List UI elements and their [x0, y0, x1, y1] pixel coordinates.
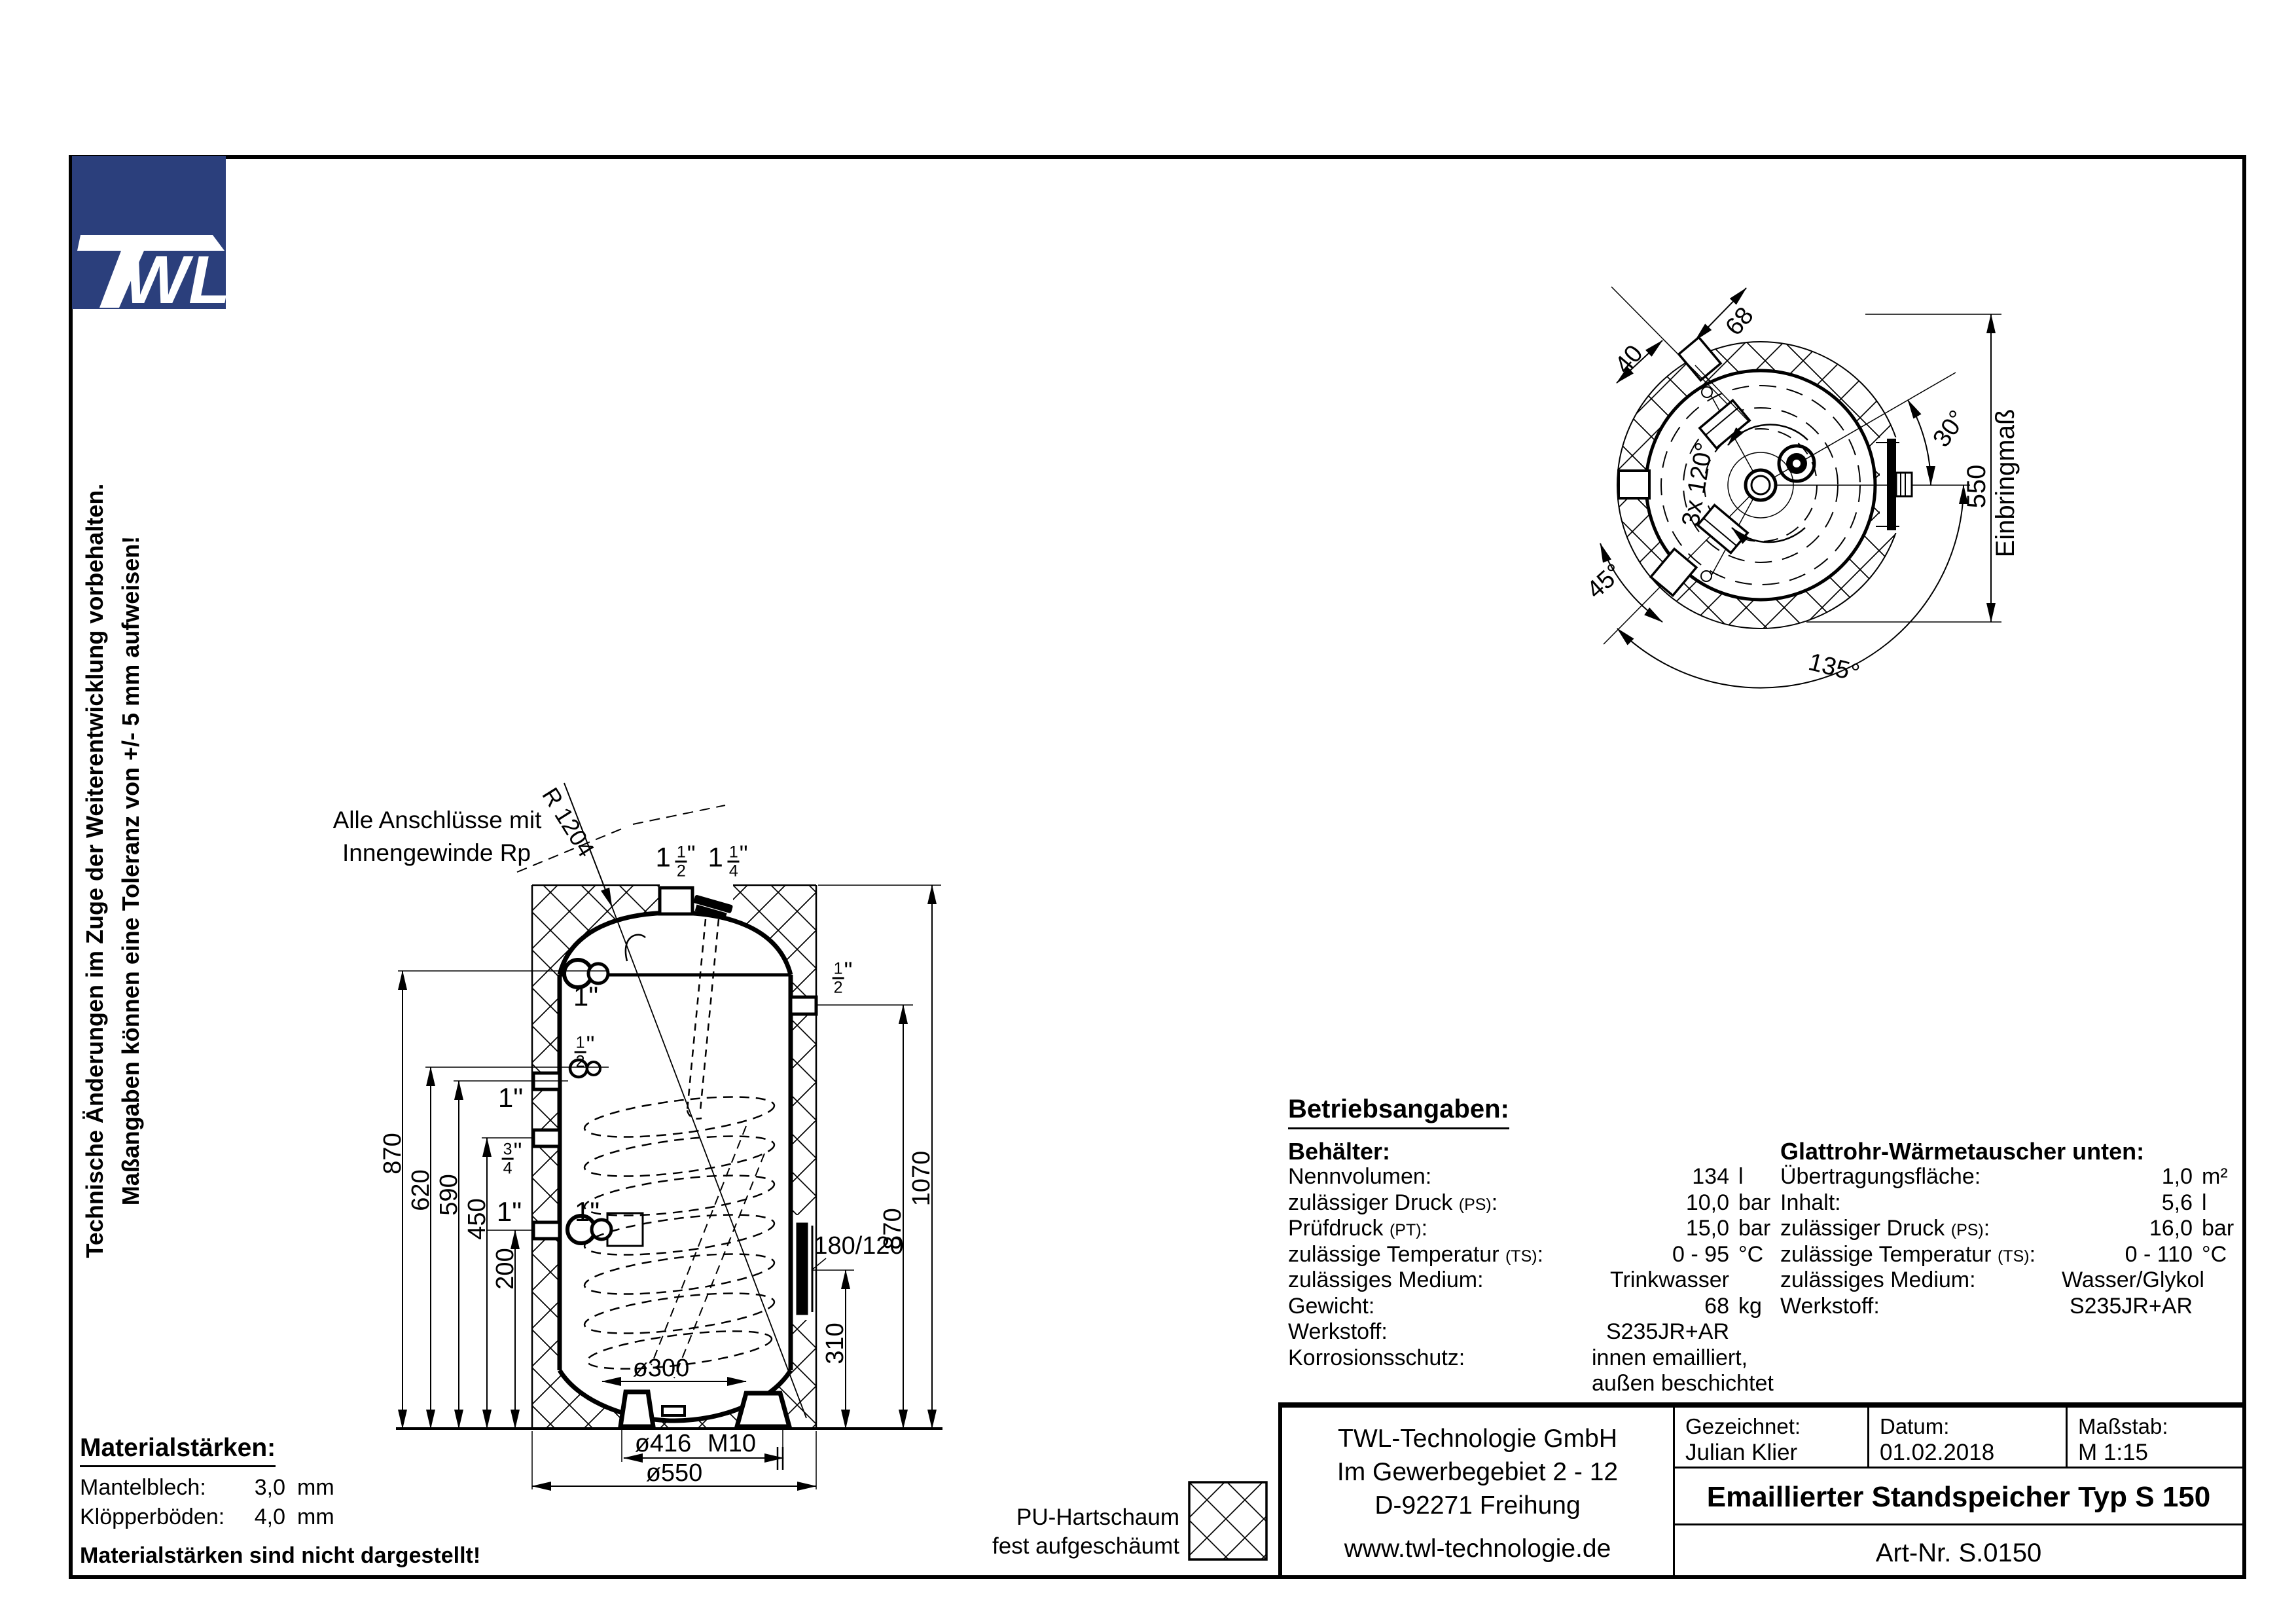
- heat-exchanger-title: Glattrohr-Wärmetauscher unten:: [1780, 1138, 2238, 1164]
- table-row: zulässige Temperatur (TS):0 - 110°C: [1780, 1242, 2238, 1268]
- drawing-title: Emaillierter Standspeicher Typ S 150: [1675, 1470, 2242, 1525]
- tv-einbringmass: Einbringmaß: [1992, 409, 2018, 558]
- dim-310: 310: [823, 1322, 848, 1364]
- pu-foam-legend: PU-Hartschaum fest aufgeschäumt: [950, 1503, 1179, 1561]
- heat-exchanger-column: Glattrohr-Wärmetauscher unten: Übertragu…: [1780, 1138, 2238, 1319]
- dim-d550: ø550: [646, 1461, 703, 1486]
- material-row: Klöpperböden:4,0mm: [80, 1504, 577, 1534]
- date-cell: Datum: 01.02.2018: [1869, 1408, 2068, 1467]
- date-label: Datum:: [1880, 1413, 2055, 1440]
- drawn-by-cell: Gezeichnet: Julian Klier: [1675, 1408, 1869, 1467]
- material-row: Mantelblech:3,0mm: [80, 1475, 577, 1504]
- table-row: zulässiger Druck (PS):16,0bar: [1780, 1216, 2238, 1242]
- dim-d300: ø300: [633, 1356, 690, 1381]
- conn-label-1in-top: 1": [573, 983, 598, 1010]
- company-city: D-92271 Freihung: [1282, 1489, 1673, 1522]
- vessel-column: Behälter: Nennvolumen:134l zulässiger Dr…: [1288, 1138, 1780, 1397]
- revision-note-line2: Maßangaben können eine Toleranz von +/- …: [113, 484, 149, 1258]
- company-street: Im Gewerbegebiet 2 - 12: [1282, 1455, 1673, 1489]
- drawn-by-value: Julian Klier: [1685, 1440, 1857, 1466]
- company-cell: TWL-Technologie GmbH Im Gewerbegebiet 2 …: [1282, 1408, 1675, 1579]
- table-row: Übertragungsfläche:1,0m²: [1780, 1164, 2238, 1190]
- dim-1070: 1070: [909, 1151, 934, 1207]
- twl-logo: WL: [72, 156, 226, 309]
- conn-label-1in-mid: 1": [498, 1084, 523, 1112]
- revision-note-line1: Technische Änderungen im Zuge der Weiter…: [77, 484, 113, 1258]
- table-row: Nennvolumen:134l: [1288, 1164, 1780, 1190]
- dim-450: 450: [465, 1198, 490, 1239]
- material-thickness-section: Materialstärken: Mantelblech:3,0mm Klöpp…: [80, 1434, 577, 1569]
- dim-620: 620: [408, 1169, 433, 1211]
- dim-590: 590: [437, 1174, 461, 1215]
- dim-870-left: 870: [380, 1133, 405, 1174]
- material-title: Materialstärken:: [80, 1434, 276, 1467]
- article-number: Art-Nr. S.0150: [1675, 1527, 2242, 1579]
- scale-cell: Maßstab: M 1:15: [2068, 1408, 2242, 1467]
- meta-row: Gezeichnet: Julian Klier Datum: 01.02.20…: [1675, 1408, 2242, 1468]
- conn-label-1in-bottom-right: 1": [575, 1198, 600, 1226]
- pu-foam-hatch-sample: [1188, 1481, 1268, 1561]
- material-note: Materialstärken sind nicht dargestellt!: [80, 1543, 577, 1569]
- dim-d416: ø416: [635, 1431, 692, 1456]
- title-block-right: Gezeichnet: Julian Klier Datum: 01.02.20…: [1675, 1408, 2242, 1579]
- operating-data-section: Betriebsangaben: Behälter: Nennvolumen:1…: [1288, 1095, 2246, 1399]
- conn-label-halfin-left: 12": [575, 1028, 595, 1070]
- table-row: zulässiges Medium:Trinkwasser: [1288, 1267, 1780, 1294]
- table-row: Inhalt:5,6l: [1780, 1190, 2238, 1216]
- table-row: außen beschichtet: [1288, 1371, 1780, 1397]
- table-row: zulässiges Medium:Wasser/Glykol: [1780, 1267, 2238, 1294]
- drawn-by-label: Gezeichnet:: [1685, 1413, 1857, 1440]
- table-row: Werkstoff:S235JR+AR: [1780, 1294, 2238, 1320]
- table-row: zulässige Temperatur (TS):0 - 95°C: [1288, 1242, 1780, 1268]
- connections-note-line1: Alle Anschlüsse mit: [333, 804, 542, 837]
- conn-label-1-5in: 112": [655, 844, 695, 880]
- tv-dim-550: 550: [1964, 465, 1990, 509]
- conn-label-halfin-right: 12": [833, 954, 853, 996]
- table-row: zulässiger Druck (PS):10,0bar: [1288, 1190, 1780, 1216]
- revision-note: Technische Änderungen im Zuge der Weiter…: [77, 484, 149, 1258]
- dim-flange-180-120: 180/120: [814, 1233, 903, 1258]
- scale-label: Maßstab:: [2078, 1413, 2232, 1440]
- conn-label-34in-left: 34": [502, 1135, 522, 1177]
- operating-data-title: Betriebsangaben:: [1288, 1095, 1509, 1129]
- title-block: TWL-Technologie GmbH Im Gewerbegebiet 2 …: [1278, 1402, 2242, 1579]
- table-row: Gewicht:68kg: [1288, 1294, 1780, 1320]
- drawing-sheet: { "side_note": { "line1": "Technische Än…: [0, 0, 2296, 1623]
- scale-value: M 1:15: [2078, 1440, 2232, 1466]
- connections-note-line2: Innengewinde Rp: [342, 837, 531, 869]
- logo-letters: WL: [124, 242, 226, 309]
- table-row: Prüfdruck (PT):15,0bar: [1288, 1216, 1780, 1242]
- date-value: 01.02.2018: [1880, 1440, 2055, 1466]
- vessel-title: Behälter:: [1288, 1138, 1780, 1164]
- dim-200: 200: [493, 1248, 518, 1289]
- conn-label-1in-bottom-left: 1": [497, 1198, 522, 1226]
- company-name: TWL-Technologie GmbH: [1282, 1422, 1673, 1455]
- conn-label-1-25in: 114": [708, 844, 747, 880]
- pu-foam-line2: fest aufgeschäumt: [950, 1532, 1179, 1561]
- pu-foam-line1: PU-Hartschaum: [950, 1503, 1179, 1532]
- company-website: www.twl-technologie.de: [1282, 1532, 1673, 1565]
- table-row: Korrosionsschutz:innen emailliert,: [1288, 1345, 1780, 1372]
- dim-m10: M10: [708, 1431, 756, 1456]
- table-row: Werkstoff:S235JR+AR: [1288, 1319, 1780, 1345]
